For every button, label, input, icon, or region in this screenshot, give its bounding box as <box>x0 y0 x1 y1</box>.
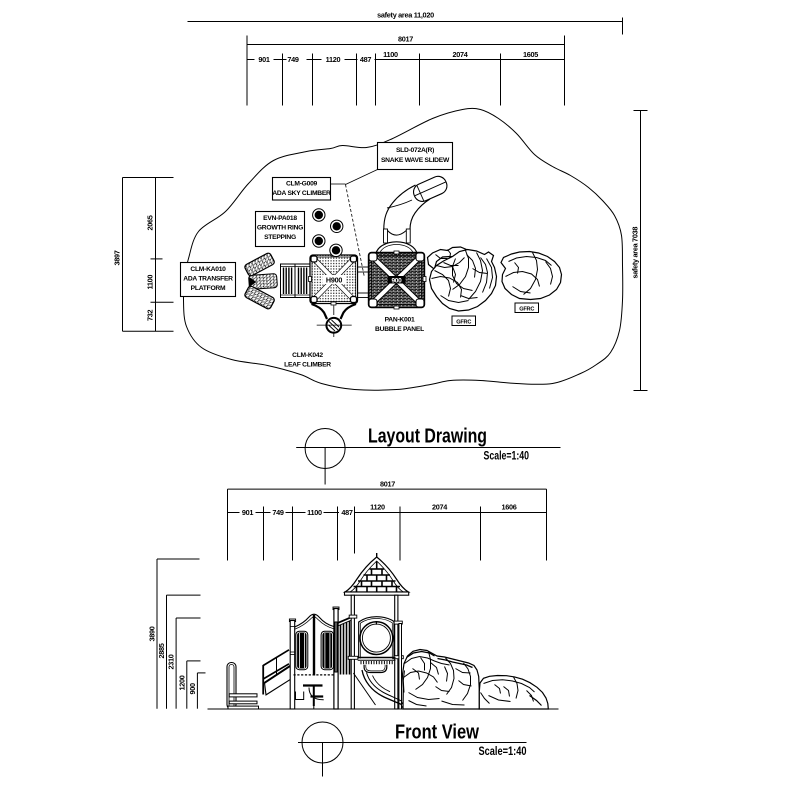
svg-text:Scale=1:40: Scale=1:40 <box>479 746 527 758</box>
svg-text:2310: 2310 <box>167 654 176 669</box>
svg-text:2074: 2074 <box>432 503 448 512</box>
svg-text:1120: 1120 <box>326 55 341 64</box>
svg-text:ADA SKY CLIMBER: ADA SKY CLIMBER <box>272 190 331 197</box>
svg-text:CLM-KA010: CLM-KA010 <box>190 266 226 273</box>
svg-text:901: 901 <box>242 508 254 517</box>
svg-text:safety area 11,020: safety area 11,020 <box>377 11 434 20</box>
svg-text:901: 901 <box>258 55 270 64</box>
svg-text:732: 732 <box>146 309 155 321</box>
svg-text:PLATFORM: PLATFORM <box>191 285 226 292</box>
svg-text:H900: H900 <box>326 276 342 285</box>
svg-text:ADA TRANSFER: ADA TRANSFER <box>183 276 233 283</box>
svg-text:GFRC: GFRC <box>456 320 471 326</box>
svg-text:900: 900 <box>391 277 402 284</box>
svg-text:BUBBLE PANEL: BUBBLE PANEL <box>375 326 424 333</box>
svg-text:safety area 7038: safety area 7038 <box>631 227 640 279</box>
svg-text:STEPPING: STEPPING <box>264 234 296 241</box>
svg-text:Scale=1:40: Scale=1:40 <box>484 451 530 463</box>
svg-text:1605: 1605 <box>523 50 538 59</box>
svg-text:8017: 8017 <box>398 35 413 44</box>
svg-text:1100: 1100 <box>146 275 155 290</box>
svg-text:1200: 1200 <box>178 675 187 690</box>
svg-text:3897: 3897 <box>113 250 122 265</box>
svg-text:Layout Drawing: Layout Drawing <box>368 426 487 448</box>
svg-text:GROWTH RING: GROWTH RING <box>257 225 303 232</box>
svg-text:3890: 3890 <box>148 626 157 641</box>
svg-text:LEAF CLIMBER: LEAF CLIMBER <box>284 362 331 369</box>
svg-text:749: 749 <box>272 508 284 517</box>
svg-text:CLM-G009: CLM-G009 <box>286 181 318 188</box>
svg-text:PAN-K001: PAN-K001 <box>385 317 415 324</box>
svg-text:2074: 2074 <box>452 50 468 59</box>
svg-text:8017: 8017 <box>380 480 395 489</box>
svg-text:1100: 1100 <box>307 508 322 517</box>
svg-text:GFRC: GFRC <box>519 307 534 313</box>
svg-text:1100: 1100 <box>383 50 398 59</box>
svg-text:900: 900 <box>188 683 197 695</box>
svg-text:749: 749 <box>287 55 299 64</box>
svg-text:1120: 1120 <box>370 503 385 512</box>
svg-text:CLM-K042: CLM-K042 <box>292 352 323 359</box>
svg-text:487: 487 <box>360 55 372 64</box>
svg-text:EVN-PA018: EVN-PA018 <box>263 215 297 222</box>
svg-text:SLD-072A(R): SLD-072A(R) <box>396 147 434 154</box>
svg-text:SNAKE WAVE SLIDEW: SNAKE WAVE SLIDEW <box>381 157 450 164</box>
svg-text:2885: 2885 <box>157 643 166 658</box>
svg-text:2065: 2065 <box>146 215 155 230</box>
svg-text:487: 487 <box>341 508 353 517</box>
svg-text:1606: 1606 <box>501 503 516 512</box>
svg-text:Front View: Front View <box>395 722 479 744</box>
